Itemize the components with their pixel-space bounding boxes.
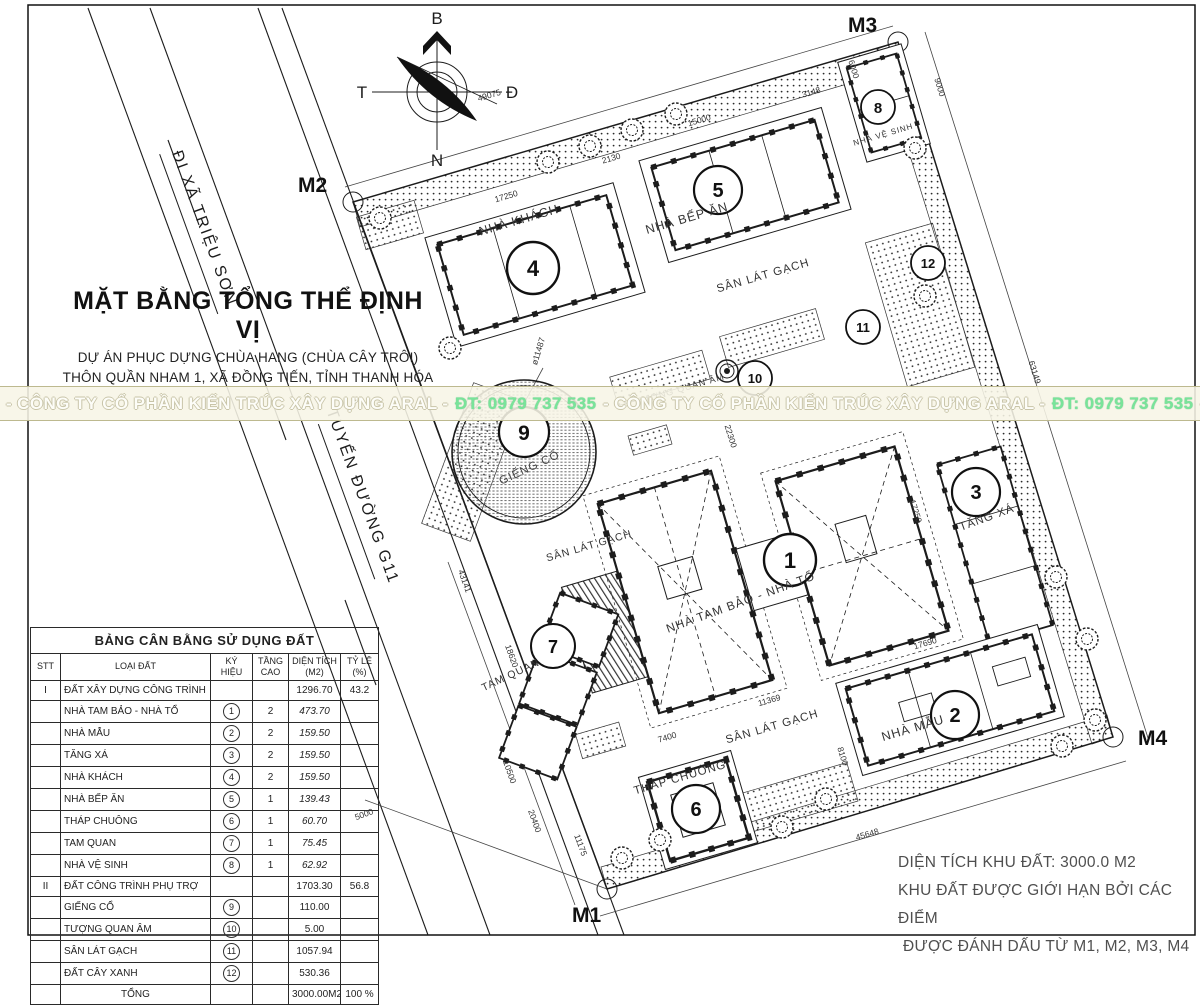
page-title: MẶT BẰNG TỔNG THỂ ĐỊNH VỊ: [62, 287, 434, 345]
cell-ty-le: [341, 940, 379, 962]
table-row: TAM QUAN 7 1 75.45: [31, 832, 379, 854]
cell-ty-le: [341, 918, 379, 940]
title-subtitle-2: THÔN QUẦN NHAM 1, XÃ ĐỒNG TIẾN, TỈNH THA…: [62, 370, 434, 385]
cell-ty-le: [341, 854, 379, 876]
table-row: NHÀ TAM BẢO - NHÀ TỔ 1 2 473.70: [31, 700, 379, 722]
cell-loai-dat: NHÀ KHÁCH: [61, 766, 211, 788]
col-header-stt: STT: [31, 654, 61, 681]
cell-stt: [31, 810, 61, 832]
cell-loai-dat: SÂN LÁT GẠCH: [61, 940, 211, 962]
cell-ky-hieu: 8: [211, 854, 253, 876]
cell-ky-hieu: [211, 680, 253, 700]
cell-dien-tich: 159.50: [289, 766, 341, 788]
cell-tang-cao: [253, 680, 289, 700]
table-row: GIẾNG CỔ 9 110.00: [31, 896, 379, 918]
compass-east-label: Đ: [506, 83, 518, 102]
table-row: I ĐẤT XÂY DỰNG CÔNG TRÌNH 1296.70 43.2: [31, 680, 379, 700]
cell-dien-tich: 159.50: [289, 744, 341, 766]
symbol-circle: 7: [223, 835, 240, 852]
cell-stt: [31, 940, 61, 962]
badge-10-number: 10: [748, 371, 762, 386]
cell-ty-le: [341, 896, 379, 918]
cell-ky-hieu: 1: [211, 700, 253, 722]
cell-stt: [31, 962, 61, 984]
col-header-loai-dat: LOẠI ĐẤT: [61, 654, 211, 681]
land-use-table: BẢNG CÂN BẰNG SỬ DỤNG ĐẤT STT LOẠI ĐẤT K…: [30, 627, 379, 1005]
cell-ty-le: [341, 744, 379, 766]
cell-tang-cao: [253, 962, 289, 984]
cell-ty-le: [341, 766, 379, 788]
cell-ky-hieu: [211, 984, 253, 1004]
cell-dien-tich: 1057.94: [289, 940, 341, 962]
cell-ky-hieu: 12: [211, 962, 253, 984]
badge-1-number: 1: [784, 548, 796, 573]
dim-label: 45648: [854, 826, 880, 842]
cell-dien-tich: 60.70: [289, 810, 341, 832]
cell-ky-hieu: 3: [211, 744, 253, 766]
cell-stt: [31, 722, 61, 744]
cell-dien-tich: 1296.70: [289, 680, 341, 700]
col-header-ty-le: TỶ LỆ (%): [341, 654, 379, 681]
table-total-row: TỔNG 3000.00M2 100 %: [31, 984, 379, 1004]
watermark-phone-1: ĐT: 0979 737 535: [455, 394, 597, 414]
symbol-circle: 3: [223, 747, 240, 764]
cell-ky-hieu: [211, 876, 253, 896]
symbol-circle: 10: [223, 921, 240, 938]
cell-ky-hieu: 10: [211, 918, 253, 940]
cell-dien-tich: 530.36: [289, 962, 341, 984]
cell-tang-cao: 2: [253, 766, 289, 788]
symbol-circle: 6: [223, 813, 240, 830]
cell-stt: [31, 854, 61, 876]
table-header-row: STT LOẠI ĐẤT KÝ HIỆU TẦNG CAO DIỆN TÍCH …: [31, 654, 379, 681]
dim-label: ø11487: [529, 336, 547, 366]
cell-ky-hieu: 6: [211, 810, 253, 832]
cell-loai-dat: NHÀ VỆ SINH: [61, 854, 211, 876]
symbol-circle: 2: [223, 725, 240, 742]
cell-stt: [31, 788, 61, 810]
table-row: TƯỢNG QUAN ÂM 10 5.00: [31, 918, 379, 940]
road-label-g11: TUYẾN ĐƯỜNG G11: [315, 406, 404, 589]
road-label-trieu-son-text: ĐI XÃ TRIỆU SƠN: [168, 147, 243, 308]
cell-stt: [31, 918, 61, 940]
col-header-tang-cao: TẦNG CAO: [253, 654, 289, 681]
cell-tang-cao: 1: [253, 832, 289, 854]
badge-12: 12: [911, 246, 945, 280]
badge-12-number: 12: [921, 256, 935, 271]
marker-m2: M2: [298, 174, 327, 197]
badge-8: 8: [861, 90, 895, 124]
watermark-company-2: - CÔNG TY CỔ PHẦN KIẾN TRÚC XÂY DỰNG ARA…: [603, 394, 1045, 414]
cell-stt: [31, 896, 61, 918]
dim-label: 9000: [932, 77, 947, 98]
road-label-g11-text: TUYẾN ĐƯỜNG G11: [323, 406, 404, 586]
cell-stt: [31, 766, 61, 788]
cell-ky-hieu: 2: [211, 722, 253, 744]
badge-11-number: 11: [856, 320, 870, 335]
cell-ty-le: 100 %: [341, 984, 379, 1004]
badge-6-number: 6: [690, 799, 701, 821]
cell-tang-cao: [253, 876, 289, 896]
badge-7-number: 7: [548, 637, 558, 657]
label-san-lat-gach-1: SÂN LÁT GẠCH: [715, 256, 811, 295]
compass-north-label: B: [431, 9, 442, 28]
badge-4: 4: [507, 242, 559, 294]
cell-dien-tich: 1703.30: [289, 876, 341, 896]
cell-dien-tich: 5.00: [289, 918, 341, 940]
compass-south-label: N: [431, 151, 443, 170]
symbol-circle: 9: [223, 899, 240, 916]
marker-m4: M4: [1138, 727, 1167, 750]
table-row: THÁP CHUÔNG 6 1 60.70: [31, 810, 379, 832]
cell-loai-dat: TỔNG: [61, 984, 211, 1004]
cell-ty-le: 43.2: [341, 680, 379, 700]
symbol-circle: 12: [223, 965, 240, 982]
badge-6: 6: [672, 785, 720, 833]
cell-loai-dat: TƯỢNG QUAN ÂM: [61, 918, 211, 940]
cell-ty-le: [341, 810, 379, 832]
cell-loai-dat: ĐẤT CÔNG TRÌNH PHỤ TRỢ: [61, 876, 211, 896]
cell-tang-cao: 2: [253, 744, 289, 766]
watermark-company-1: - CÔNG TY CỔ PHẦN KIẾN TRÚC XÂY DỰNG ARA…: [6, 394, 448, 414]
table-title: BẢNG CÂN BẰNG SỬ DỤNG ĐẤT: [31, 628, 379, 654]
table-row: ĐẤT CÂY XANH 12 530.36: [31, 962, 379, 984]
title-block: MẶT BẰNG TỔNG THỂ ĐỊNH VỊ DỰ ÁN PHỤC DỰN…: [62, 287, 434, 385]
cell-tang-cao: 1: [253, 854, 289, 876]
cell-dien-tich: 159.50: [289, 722, 341, 744]
cell-ty-le: [341, 832, 379, 854]
cell-loai-dat: NHÀ MẪU: [61, 722, 211, 744]
cell-tang-cao: 1: [253, 788, 289, 810]
cell-ty-le: [341, 788, 379, 810]
cell-tang-cao: [253, 940, 289, 962]
badge-3-number: 3: [970, 482, 981, 504]
table-row: NHÀ KHÁCH 4 2 159.50: [31, 766, 379, 788]
cell-stt: [31, 832, 61, 854]
watermark-phone-2: ĐT: 0979 737 535: [1052, 394, 1194, 414]
table-row: SÂN LÁT GẠCH 11 1057.94: [31, 940, 379, 962]
table-row: TĂNG XÁ 3 2 159.50: [31, 744, 379, 766]
cell-stt: [31, 744, 61, 766]
cell-dien-tich: 139.43: [289, 788, 341, 810]
table-row: II ĐẤT CÔNG TRÌNH PHỤ TRỢ 1703.30 56.8: [31, 876, 379, 896]
cell-ty-le: [341, 700, 379, 722]
badge-5-number: 5: [712, 180, 723, 202]
cell-loai-dat: TAM QUAN: [61, 832, 211, 854]
dim-label: 7400: [657, 730, 678, 745]
cell-stt: II: [31, 876, 61, 896]
table-row: NHÀ BẾP ĂN 5 1 139.43: [31, 788, 379, 810]
badge-9-number: 9: [518, 422, 530, 445]
note-line-3: ĐƯỢC ĐÁNH DẤU TỪ M1, M2, M3, M4: [898, 933, 1198, 961]
cell-loai-dat: NHÀ BẾP ĂN: [61, 788, 211, 810]
cell-ky-hieu: 11: [211, 940, 253, 962]
note-line-1: DIỆN TÍCH KHU ĐẤT: 3000.0 M2: [898, 849, 1198, 877]
dim-label: 17250: [493, 188, 519, 204]
cell-loai-dat: THÁP CHUÔNG: [61, 810, 211, 832]
col-header-ky-hieu: KÝ HIỆU: [211, 654, 253, 681]
symbol-circle: 1: [223, 703, 240, 720]
badge-11: 11: [846, 310, 880, 344]
cell-dien-tich: 3000.00M2: [289, 984, 341, 1004]
cell-dien-tich: 62.92: [289, 854, 341, 876]
symbol-circle: 8: [223, 857, 240, 874]
watermark-banner: - CÔNG TY CỔ PHẦN KIẾN TRÚC XÂY DỰNG ARA…: [0, 386, 1200, 421]
dim-label: 63149: [1027, 359, 1044, 385]
marker-m1: M1: [572, 904, 601, 927]
cell-ty-le: 56.8: [341, 876, 379, 896]
cell-stt: I: [31, 680, 61, 700]
marker-m3: M3: [848, 14, 877, 37]
badge-8-number: 8: [874, 100, 882, 117]
dim-label: 11369: [757, 692, 782, 708]
cell-loai-dat: GIẾNG CỔ: [61, 896, 211, 918]
cell-ky-hieu: 5: [211, 788, 253, 810]
cell-tang-cao: 2: [253, 700, 289, 722]
table-row: NHÀ VỆ SINH 8 1 62.92: [31, 854, 379, 876]
dim-label: 22300: [723, 423, 740, 449]
cell-dien-tich: 110.00: [289, 896, 341, 918]
cell-ty-le: [341, 722, 379, 744]
symbol-circle: 4: [223, 769, 240, 786]
cell-ky-hieu: 9: [211, 896, 253, 918]
compass-west-label: T: [357, 83, 367, 102]
cell-ky-hieu: 7: [211, 832, 253, 854]
site-notes: DIỆN TÍCH KHU ĐẤT: 3000.0 M2 KHU ĐẤT ĐƯỢ…: [898, 849, 1198, 961]
cell-tang-cao: [253, 896, 289, 918]
cell-ty-le: [341, 962, 379, 984]
symbol-circle: 11: [223, 943, 240, 960]
cell-tang-cao: 1: [253, 810, 289, 832]
label-san-lat-gach-3: SÂN LÁT GẠCH: [724, 707, 820, 746]
table-row: NHÀ MẪU 2 2 159.50: [31, 722, 379, 744]
cell-ky-hieu: 4: [211, 766, 253, 788]
table-title-row: BẢNG CÂN BẰNG SỬ DỤNG ĐẤT: [31, 628, 379, 654]
dim-label: 20400: [526, 808, 544, 834]
symbol-circle: 5: [223, 791, 240, 808]
badge-4-number: 4: [527, 256, 540, 281]
cell-loai-dat: NHÀ TAM BẢO - NHÀ TỔ: [61, 700, 211, 722]
cell-tang-cao: 2: [253, 722, 289, 744]
col-header-dien-tich: DIỆN TÍCH (M2): [289, 654, 341, 681]
cell-stt: [31, 700, 61, 722]
cell-dien-tich: 473.70: [289, 700, 341, 722]
cell-dien-tich: 75.45: [289, 832, 341, 854]
cell-stt: [31, 984, 61, 1004]
cell-tang-cao: [253, 984, 289, 1004]
dim-label: 8100: [835, 746, 850, 767]
badge-2-number: 2: [949, 705, 960, 727]
cell-loai-dat: TĂNG XÁ: [61, 744, 211, 766]
title-subtitle-1: DỰ ÁN PHỤC DỰNG CHÙA HANG (CHÙA CÂY TRÔI…: [62, 350, 434, 365]
cell-loai-dat: ĐẤT XÂY DỰNG CÔNG TRÌNH: [61, 680, 211, 700]
note-line-2: KHU ĐẤT ĐƯỢC GIỚI HẠN BỞI CÁC ĐIỂM: [898, 877, 1198, 933]
cell-tang-cao: [253, 918, 289, 940]
cell-loai-dat: ĐẤT CÂY XANH: [61, 962, 211, 984]
